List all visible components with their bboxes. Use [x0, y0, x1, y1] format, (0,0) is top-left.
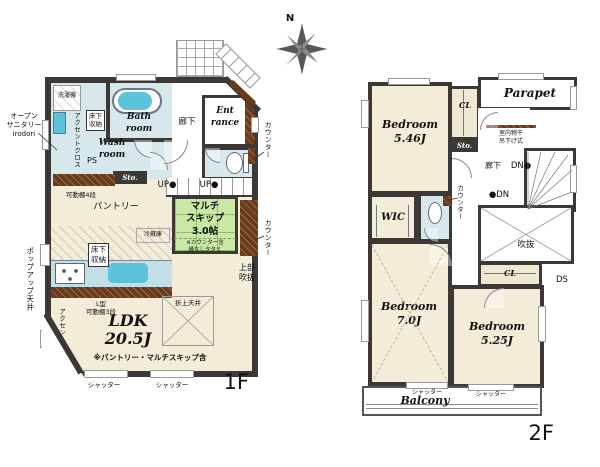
stove [55, 263, 85, 284]
pantry-label: パントリー [86, 202, 146, 214]
entrance-label: Ent rance [206, 106, 244, 129]
upper-void-label: 上部 吹抜 [234, 263, 260, 284]
multi-skip-label: マルチ スキップ 3.0帖 [174, 201, 236, 238]
counter-label-2: カウンター [263, 210, 272, 266]
window [406, 382, 448, 389]
storage-label-1f: Sto. [122, 173, 137, 182]
wic-label: WIC [372, 211, 414, 224]
balcony-label: Balcony [392, 394, 458, 408]
hanger-rod [463, 90, 464, 136]
compass-icon [277, 24, 327, 74]
window [570, 165, 577, 193]
window [40, 244, 50, 266]
floorplan-canvas: Sto. オープン サニタリー irodori 洗濯機 アクセントクロス 床下 … [0, 0, 600, 467]
dn-label-2: ●DN [484, 190, 514, 201]
bedroom-70-label: Bedroom 7.0J [372, 300, 446, 329]
underfloor-storage-label-1: 床下 収納 [86, 110, 105, 131]
bathtub-water [118, 92, 152, 110]
window [40, 330, 50, 348]
counter-label-3: カウンター [455, 180, 463, 224]
window [361, 100, 369, 128]
kitchen-lower-cabinet [51, 287, 172, 298]
closet-label-2: CL [496, 268, 524, 278]
up-label-1: UP● [152, 180, 182, 191]
kitchen-sink [108, 263, 148, 283]
up-label-2: UP● [194, 180, 224, 191]
shutter-label-2: シャッター [148, 381, 196, 389]
toilet-counter-1f [248, 148, 255, 164]
storage-box-2f: Sto. [449, 138, 480, 152]
multi-skip-counter [240, 200, 258, 256]
storage-box-1f: Sto. [113, 171, 147, 184]
window [468, 384, 514, 391]
popup-ceiling-label: ポップアップ天井 [25, 233, 35, 325]
bedroom-546-label: Bedroom 5.46J [375, 118, 445, 147]
void-area [478, 205, 574, 264]
pantry-shelf [53, 174, 115, 186]
compass-north-label: N [282, 12, 298, 25]
shutter-label-4: シャッター [468, 391, 514, 399]
movable-shelf4-label: 可動棚4段 [56, 191, 106, 199]
underfloor-storage-label-2: 床下 収納 [88, 243, 109, 267]
window [388, 78, 430, 85]
accent-cloth-label-1: アクセントクロス [72, 104, 80, 176]
open-sanitary-note: オープン サニタリー irodori [2, 112, 46, 139]
ldk-note: ※パントリー・マルチスキップ含 [80, 353, 220, 363]
accent-cloth-label-2: アクセントクロス [57, 302, 65, 370]
indoor-drying-label: 室内物干 吊下げ式 [488, 130, 534, 146]
fridge-label: 冷蔵庫 [137, 231, 169, 239]
dn-label-1: DN● [506, 161, 536, 172]
toilet-bowl-2f [428, 202, 442, 224]
window [150, 370, 194, 378]
door-arc [452, 158, 472, 178]
bedroom-525-label: Bedroom 5.25J [458, 320, 536, 349]
stairs-2f [524, 148, 576, 212]
window [116, 74, 156, 81]
window [498, 73, 544, 80]
storage-label-2f: Sto. [457, 141, 472, 150]
hallway-label-1f: 廊下 [176, 117, 198, 128]
approach-tiles [176, 40, 224, 77]
multi-skip-note: ※カウンター含 縁なしタタミ [174, 238, 236, 254]
shutter-label-1: シャッター [80, 381, 128, 389]
window [84, 370, 128, 378]
toilet-bowl-1f [226, 152, 243, 174]
ldk-label: LDK 20.5J [92, 312, 164, 349]
closet-label-1: CL [452, 100, 478, 110]
coffered-ceiling-label: 折上天井 [164, 299, 212, 307]
sanitary-sink [53, 112, 66, 134]
toilet-counter-2f [443, 196, 451, 206]
parapet-label: Parapet [490, 86, 570, 102]
window [538, 306, 546, 342]
floor-label-2f: 2F [510, 420, 554, 447]
ds-label: DS [550, 275, 574, 286]
hallway-label-2f: 廊下 [482, 161, 504, 171]
void-label: 吹抜 [513, 240, 539, 251]
counter-label-1: カウンター [263, 112, 272, 168]
window [251, 117, 259, 133]
room-closet-546 [449, 86, 480, 140]
washer-label: 洗濯機 [54, 92, 80, 100]
bathroom-label: Bath room [110, 112, 168, 135]
ps-label: PS [82, 156, 102, 166]
floor-label-1f: 1F [205, 369, 249, 396]
window [570, 86, 577, 110]
window [361, 300, 369, 342]
